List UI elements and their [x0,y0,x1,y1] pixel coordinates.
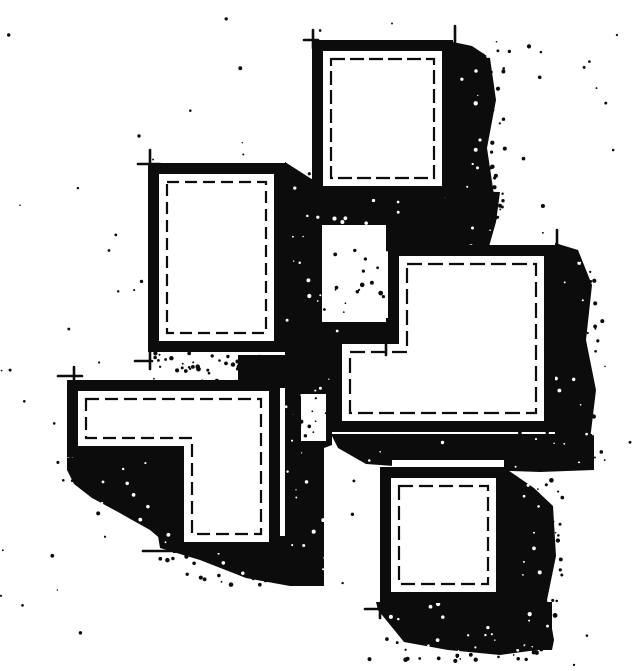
architectural-sketch-figure: Hand-drawn black and white architectural… [0,0,640,671]
gap-above-bottom-square [392,460,504,468]
room-top-square-interior [323,51,442,186]
gap-notch-courtyard [322,225,386,322]
gap-left-of-large-l [301,394,326,441]
room-left-rectangle-interior [159,174,274,341]
room-bottom-square-interior [391,478,496,592]
sketch-canvas [0,0,640,671]
